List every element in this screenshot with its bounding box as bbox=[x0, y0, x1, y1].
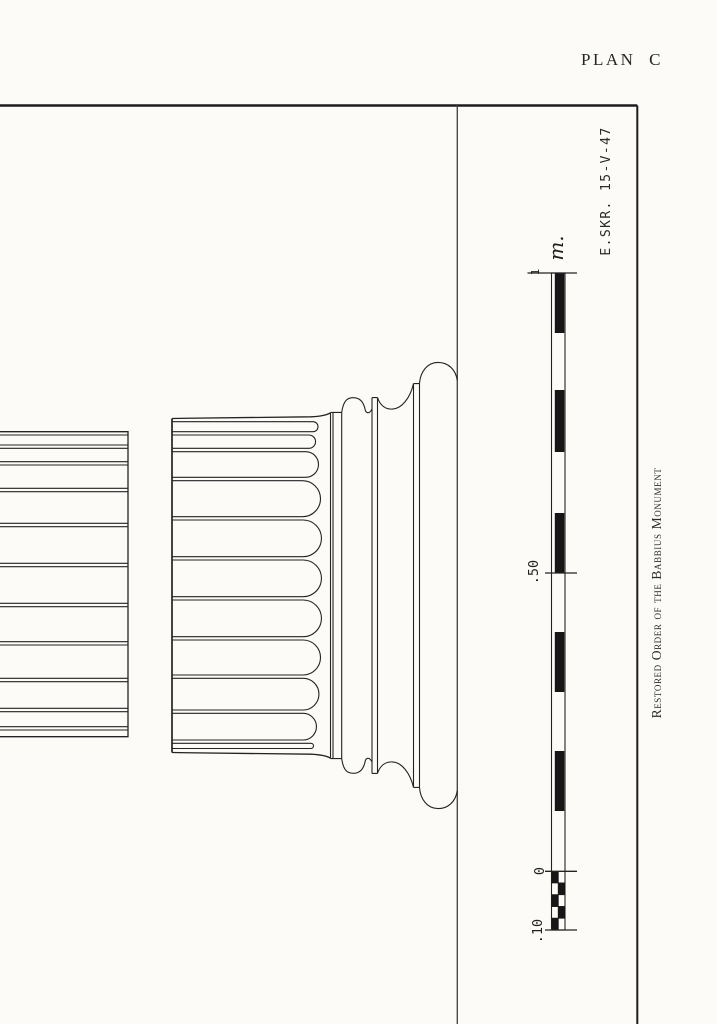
scale-label-1m: 1 bbox=[529, 261, 541, 283]
fillet-lines bbox=[331, 384, 420, 788]
scale-label-50cm: .50 bbox=[526, 554, 542, 590]
scale-bar-body bbox=[552, 273, 566, 930]
scotia-top bbox=[378, 384, 414, 410]
draftsman-signature: E.SKR. 15-V-47 bbox=[598, 116, 614, 266]
astragal-bead-bottom bbox=[342, 758, 372, 773]
torus-top bbox=[420, 362, 458, 383]
shaft-outline-bottom bbox=[172, 753, 331, 759]
plate-caption: Restored Order of the Babbius Monument bbox=[649, 443, 665, 743]
plate-page: PLAN C bbox=[0, 0, 717, 1024]
scotia-bottom bbox=[378, 762, 414, 788]
scale-bar bbox=[528, 273, 578, 930]
shaft-upper-segment bbox=[0, 432, 128, 737]
scale-label-0: 0 bbox=[532, 861, 548, 881]
base-moldings bbox=[331, 362, 458, 808]
shaft-outline-top bbox=[172, 413, 331, 419]
shaft-flutes bbox=[172, 422, 321, 749]
shaft-upper-outline bbox=[0, 432, 128, 737]
astragal-bead-top bbox=[342, 398, 372, 413]
scale-label-10cm: .10 bbox=[530, 913, 546, 949]
scale-unit-label: m. bbox=[543, 228, 569, 268]
torus-bottom bbox=[420, 787, 458, 808]
fillet-caps bbox=[331, 384, 420, 788]
shaft-upper-flute-lines bbox=[0, 435, 128, 730]
shaft-lower-segment bbox=[172, 413, 331, 758]
